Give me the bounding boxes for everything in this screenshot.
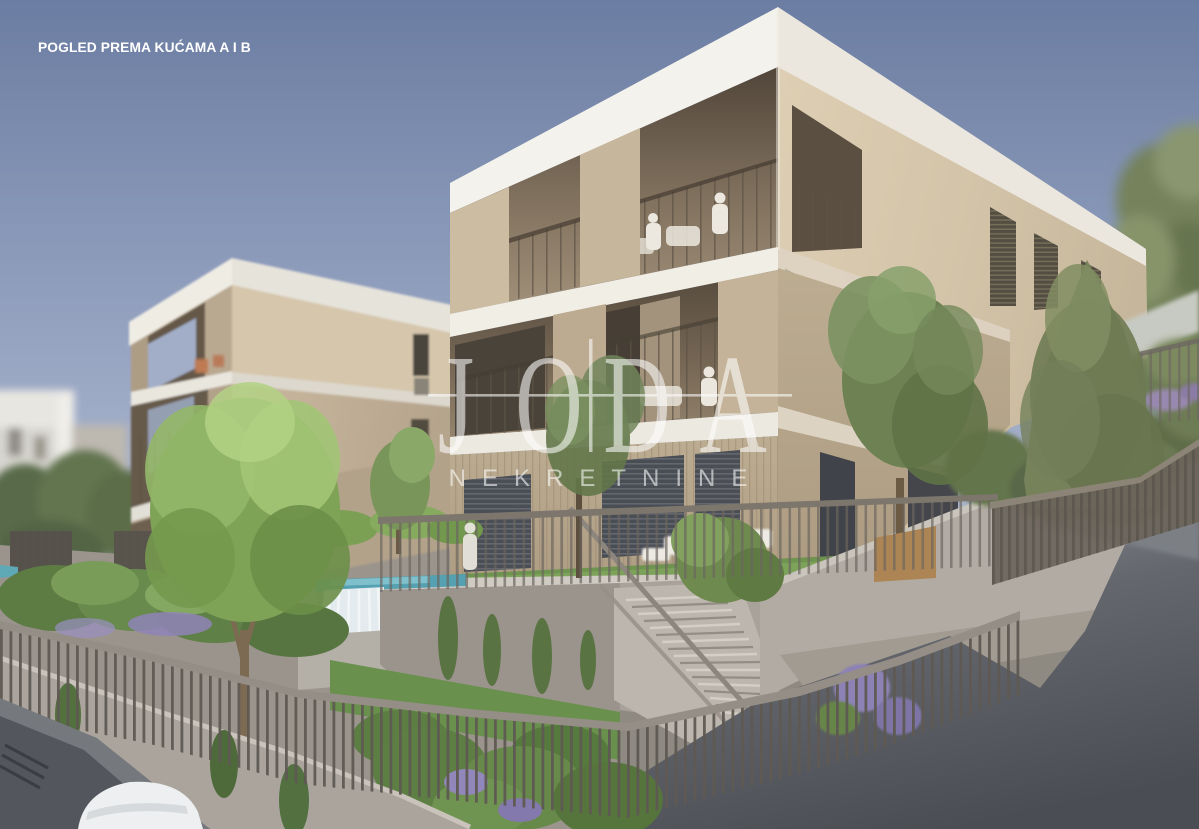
svg-text:J: J xyxy=(438,327,474,484)
svg-text:O: O xyxy=(515,327,583,484)
svg-text:D: D xyxy=(603,327,671,484)
svg-text:NEKRETNINE: NEKRETNINE xyxy=(449,465,764,492)
svg-text:POGLED PREMA KUĆAMA A I B: POGLED PREMA KUĆAMA A I B xyxy=(38,38,251,55)
svg-text:A: A xyxy=(699,327,767,484)
